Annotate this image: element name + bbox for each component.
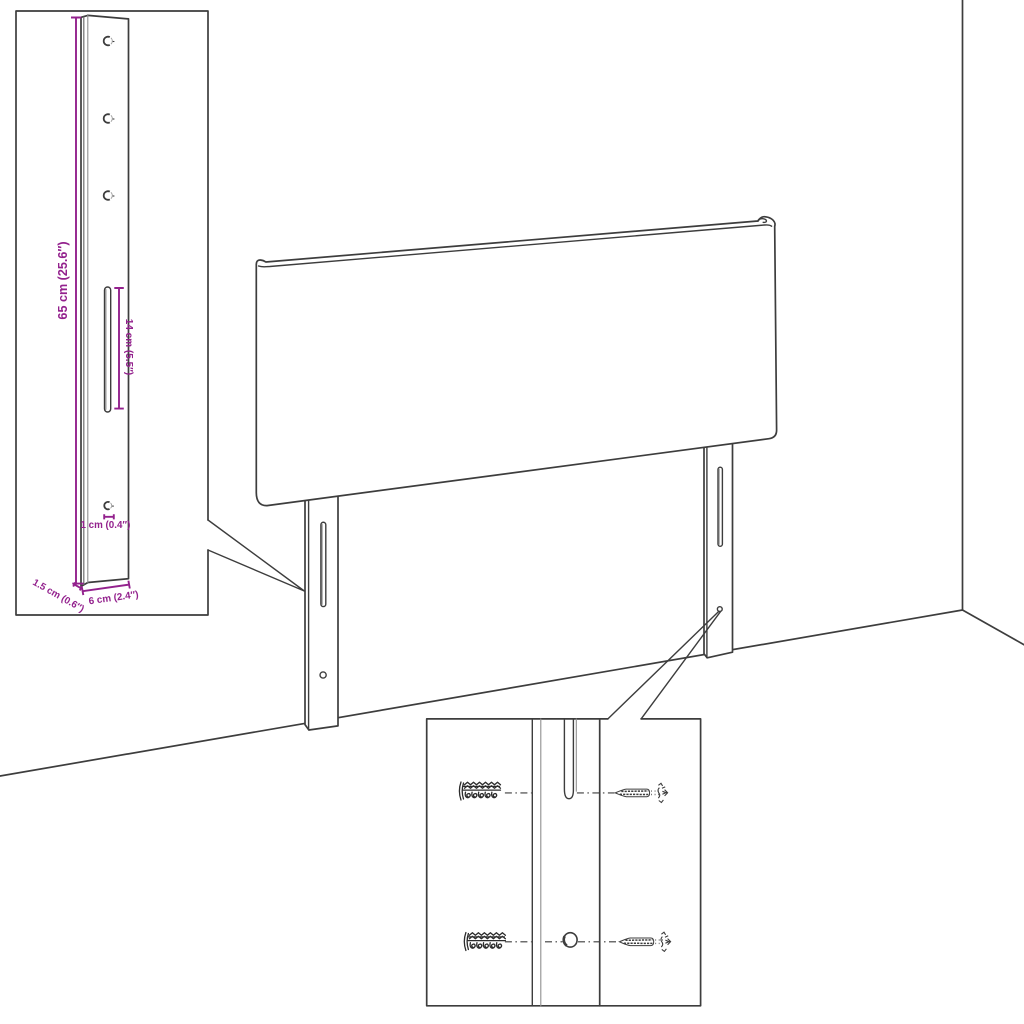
svg-text:65 cm (25.6″): 65 cm (25.6″) [56, 241, 70, 319]
svg-text:1 cm (0.4″): 1 cm (0.4″) [80, 520, 130, 531]
svg-text:14 cm (5.5″): 14 cm (5.5″) [123, 319, 134, 375]
